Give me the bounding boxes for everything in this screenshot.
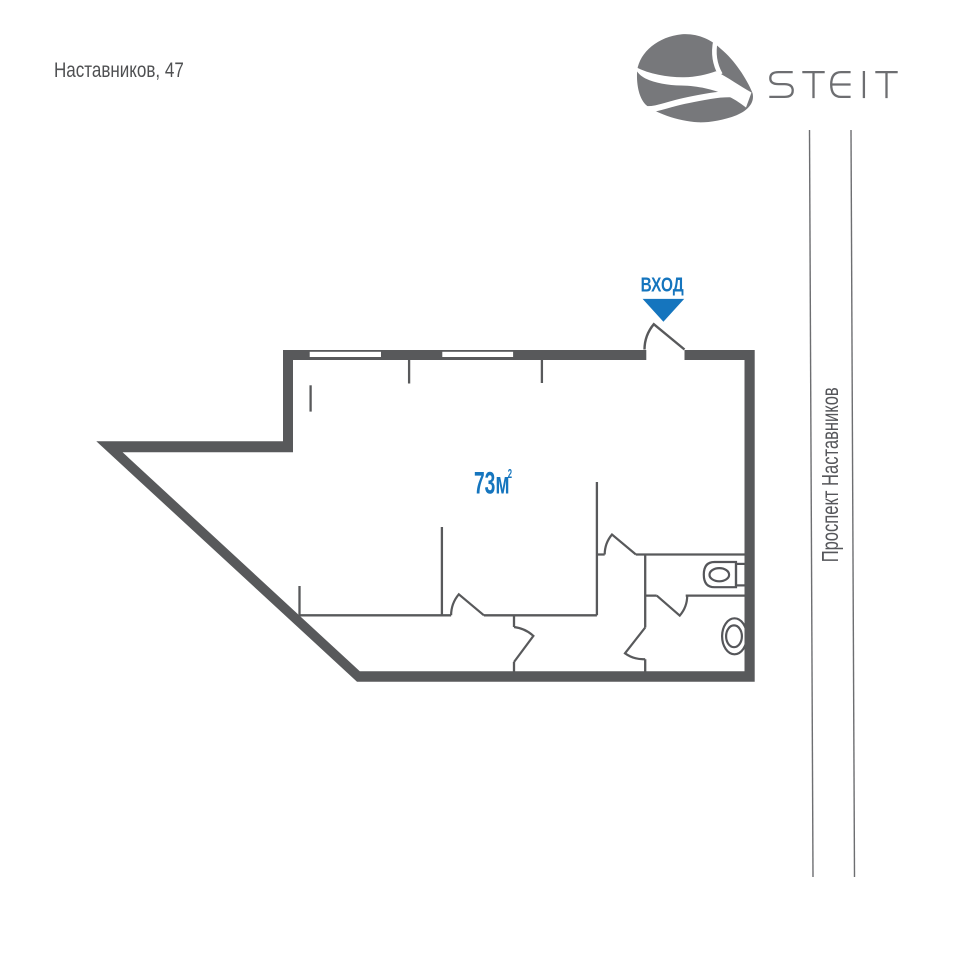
svg-text:73м: 73м	[474, 464, 510, 500]
svg-text:Наставников, 47: Наставников, 47	[54, 59, 184, 82]
svg-text:ВХОД: ВХОД	[641, 274, 684, 296]
svg-text:Проспект Наставников: Проспект Наставников	[818, 387, 843, 562]
svg-text:2: 2	[508, 468, 512, 481]
